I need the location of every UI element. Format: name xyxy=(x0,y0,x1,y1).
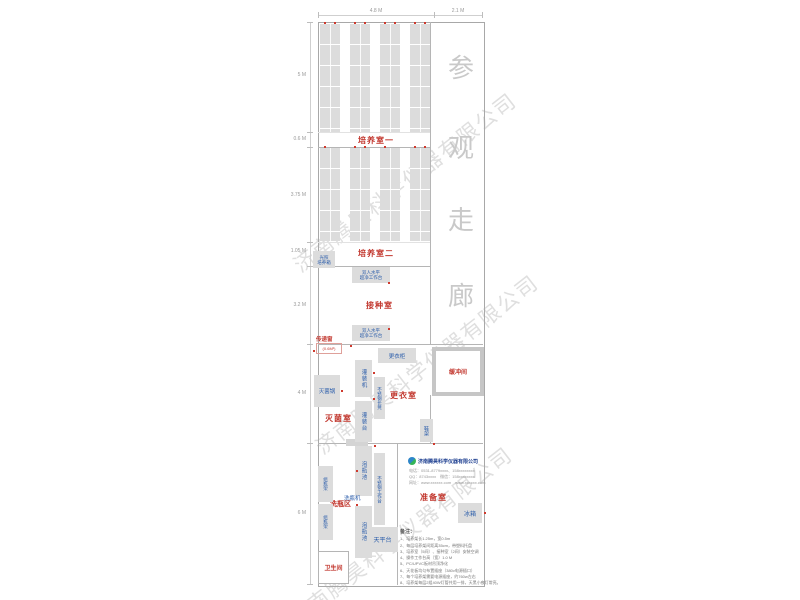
dimension-tick xyxy=(307,147,313,148)
room-label-prep: 准备室 xyxy=(420,492,447,503)
clean-bench-box: 双人水平超净工作台 xyxy=(352,267,390,283)
light-incubator-label: 光照培养箱 xyxy=(317,255,331,265)
corridor-wall xyxy=(430,22,431,345)
marker-dot xyxy=(354,146,356,148)
floorplan-canvas: 济南腾昊科学仪器有限公司 济南腾昊科学仪器有限公司 济南腾昊科学仪器有限公司 4… xyxy=(0,0,800,600)
notes-header: 备注： xyxy=(400,529,486,535)
dimension-label-32m: 3.2 M xyxy=(284,302,306,308)
culture-rack xyxy=(320,148,340,241)
culture-rack xyxy=(410,24,430,132)
fridge-box: 冰箱 xyxy=(458,503,482,523)
corridor-char-3: 走 xyxy=(444,200,478,237)
clean-bench-label: 双人水平超净工作台 xyxy=(360,328,383,339)
room-label-inoculation: 接种室 xyxy=(366,300,393,311)
filling-machine-box: 灌装机 xyxy=(355,360,372,397)
company-logo-icon xyxy=(408,457,416,465)
clean-bench-label: 双人水平超净工作台 xyxy=(360,270,383,281)
autoclave-box: 灭菌锅 xyxy=(314,375,340,407)
marker-dot xyxy=(341,390,343,392)
dimension-label-21m: 2.1 M xyxy=(438,8,478,14)
clean-bench-box: 双人水平超净工作台 xyxy=(352,325,390,341)
wardrobe-box: 更衣柜 xyxy=(378,348,416,363)
room-label-sterilize: 灭菌室 xyxy=(325,413,352,424)
rack-end-line xyxy=(318,132,430,133)
marker-dot xyxy=(484,512,486,514)
marker-dot xyxy=(313,350,315,352)
marker-dot xyxy=(388,328,390,330)
dimension-label-375m: 3.75 M xyxy=(282,192,306,198)
dimension-line-left xyxy=(310,22,311,585)
dimension-line-top xyxy=(318,15,483,16)
corridor-char-4: 廊 xyxy=(444,276,478,313)
wall-washing-prep xyxy=(397,443,398,585)
corridor-char-1: 参 xyxy=(444,48,478,85)
marker-dot xyxy=(356,504,358,506)
steel-worktable-box: 不锈钢工作台 xyxy=(374,453,385,525)
light-incubator-box: 光照培养箱 xyxy=(313,251,335,268)
bottle-washer-label: 洗瓶机 xyxy=(344,494,361,502)
marker-dot xyxy=(356,470,358,472)
dimension-tick xyxy=(307,584,313,585)
shoe-rack-box: 鞋架 xyxy=(420,419,433,442)
marker-dot xyxy=(373,372,375,374)
wall-inoculation-sterilize xyxy=(318,344,483,345)
room-label-culture1: 培养室一 xyxy=(345,135,407,146)
marker-dot xyxy=(334,22,336,24)
culture-rack xyxy=(350,148,370,241)
culture-rack xyxy=(410,148,430,241)
marker-dot xyxy=(414,146,416,148)
rack-end-line xyxy=(318,242,430,243)
room-label-changing: 更衣室 xyxy=(390,390,417,401)
marker-dot xyxy=(414,22,416,24)
marker-dot xyxy=(394,22,396,24)
marker-dot xyxy=(364,22,366,24)
marker-dot xyxy=(424,146,426,148)
pass-window-label: 传递窗 xyxy=(316,335,333,343)
dimension-tick xyxy=(318,12,319,18)
dimension-label-6m: 6 M xyxy=(286,510,306,516)
dimension-label-5m: 5 M xyxy=(286,72,306,78)
marker-dot xyxy=(384,146,386,148)
marker-dot xyxy=(433,443,435,445)
company-name: 济南腾昊科学仪器有限公司 xyxy=(418,458,478,465)
notes-block: 备注： 1、培养架长1.25m，宽0.5m 2、每层培养架间距离35cm，带塑料… xyxy=(400,529,486,587)
dimension-label-48m: 4.8 M xyxy=(356,8,396,14)
marker-dot xyxy=(374,445,376,447)
marker-dot xyxy=(324,22,326,24)
dimension-label-06m: 0.6 M xyxy=(284,136,306,142)
marker-dot xyxy=(373,398,375,400)
dimension-tick xyxy=(307,132,313,133)
dimension-tick xyxy=(307,22,313,23)
culture-rack xyxy=(320,24,340,132)
marker-dot xyxy=(354,22,356,24)
company-web: 网址：www.xxxxxx.com www.xxxxxx.com xyxy=(409,480,485,486)
dimension-tick xyxy=(482,12,483,18)
culture-rack xyxy=(350,24,370,132)
balance-table-box: 天平台 xyxy=(367,527,398,552)
marker-dot xyxy=(350,345,352,347)
culture-rack xyxy=(380,148,400,241)
room-toilet: 卫生间 xyxy=(318,551,349,584)
dimension-tick xyxy=(307,242,313,243)
steel-bench-box: 不锈钢长凳 xyxy=(374,377,385,419)
bottle-rack-box: 组瓶架 xyxy=(318,504,333,540)
filling-table-box: 灌装台 xyxy=(355,401,372,442)
bottle-rack-box: 组瓶架 xyxy=(318,466,333,502)
marker-dot xyxy=(384,22,386,24)
room-label-culture2: 培养室二 xyxy=(345,248,407,259)
pass-window-box: (0.6M²) xyxy=(316,343,342,354)
corridor-char-2: 观 xyxy=(444,128,478,165)
room-buffer: 缓冲间 xyxy=(432,347,484,396)
culture-rack xyxy=(380,24,400,132)
dimension-tick xyxy=(307,443,313,444)
marker-dot xyxy=(424,22,426,24)
room-label-toilet: 卫生间 xyxy=(324,563,342,572)
dimension-tick xyxy=(307,344,313,345)
dimension-label-4m: 4 M xyxy=(286,390,306,396)
dimension-tick xyxy=(434,12,435,18)
marker-dot xyxy=(324,146,326,148)
marker-dot xyxy=(388,282,390,284)
wall-sterilize-washing xyxy=(318,443,483,444)
company-logo-row: 济南腾昊科学仪器有限公司 xyxy=(408,457,478,465)
room-label-buffer: 缓冲间 xyxy=(449,367,467,376)
marker-dot xyxy=(364,146,366,148)
note-item: 8、培养架每层2组40W灯管共用一排，天黑小夜灯常亮。 xyxy=(400,580,486,586)
dimension-label-105m: 1.05 M xyxy=(282,248,306,254)
